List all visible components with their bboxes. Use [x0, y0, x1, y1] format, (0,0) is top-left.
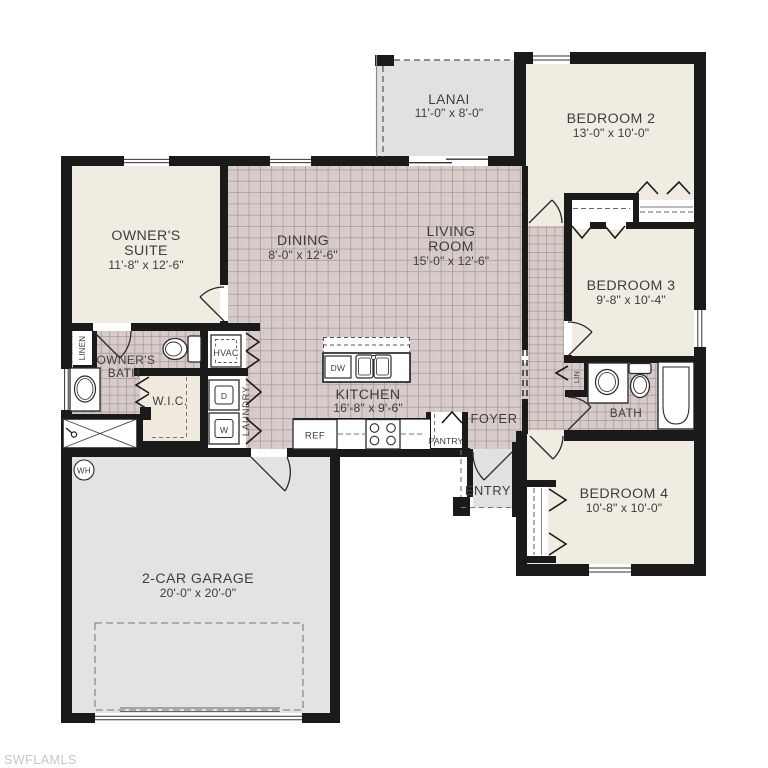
svg-text:OWNER'S: OWNER'S: [111, 228, 180, 244]
svg-text:BEDROOM 2: BEDROOM 2: [567, 111, 656, 127]
svg-text:11'-8" x 12'-6": 11'-8" x 12'-6": [108, 258, 184, 272]
svg-text:ENTRY: ENTRY: [465, 483, 511, 498]
svg-text:16'-8" x 9'-6": 16'-8" x 9'-6": [333, 401, 403, 415]
svg-text:BEDROOM 4: BEDROOM 4: [580, 486, 669, 502]
svg-text:HVAC: HVAC: [213, 348, 238, 358]
svg-text:SWFLAMLS: SWFLAMLS: [4, 753, 77, 767]
svg-text:LANAI: LANAI: [428, 92, 470, 107]
svg-text:BEDROOM 3: BEDROOM 3: [587, 278, 676, 294]
svg-text:10'-8" x 10'-0": 10'-8" x 10'-0": [586, 501, 662, 515]
svg-text:LIVING: LIVING: [427, 224, 476, 240]
svg-text:15'-0" x 12'-6": 15'-0" x 12'-6": [413, 254, 489, 268]
svg-text:D: D: [221, 391, 227, 401]
svg-text:LAUNDRY: LAUNDRY: [241, 386, 252, 436]
svg-text:20'-0" x 20'-0": 20'-0" x 20'-0": [160, 586, 236, 600]
svg-text:ROOM: ROOM: [428, 239, 474, 255]
svg-text:13'-0" x 10'-0": 13'-0" x 10'-0": [573, 126, 649, 140]
svg-text:REF: REF: [305, 431, 325, 442]
svg-text:PANTRY: PANTRY: [429, 436, 464, 446]
svg-text:9'-8" x 10'-4": 9'-8" x 10'-4": [596, 293, 666, 307]
svg-text:8'-0" x 12'-6": 8'-0" x 12'-6": [268, 248, 338, 262]
svg-text:LIN: LIN: [572, 371, 581, 383]
svg-text:DINING: DINING: [277, 233, 329, 249]
svg-text:SUITE: SUITE: [124, 243, 168, 259]
svg-text:LINEN: LINEN: [78, 336, 87, 361]
svg-text:WH: WH: [77, 467, 91, 476]
svg-text:W: W: [220, 425, 228, 435]
svg-text:OWNER'S: OWNER'S: [97, 353, 156, 367]
svg-text:2-CAR GARAGE: 2-CAR GARAGE: [142, 571, 254, 587]
svg-text:W.I.C.: W.I.C.: [152, 394, 187, 408]
svg-text:BATH: BATH: [108, 366, 141, 380]
svg-text:DW: DW: [331, 363, 346, 373]
svg-text:FOYER: FOYER: [470, 411, 517, 426]
svg-text:11'-0" x 8'-0": 11'-0" x 8'-0": [415, 106, 484, 120]
svg-text:BATH: BATH: [610, 406, 643, 420]
